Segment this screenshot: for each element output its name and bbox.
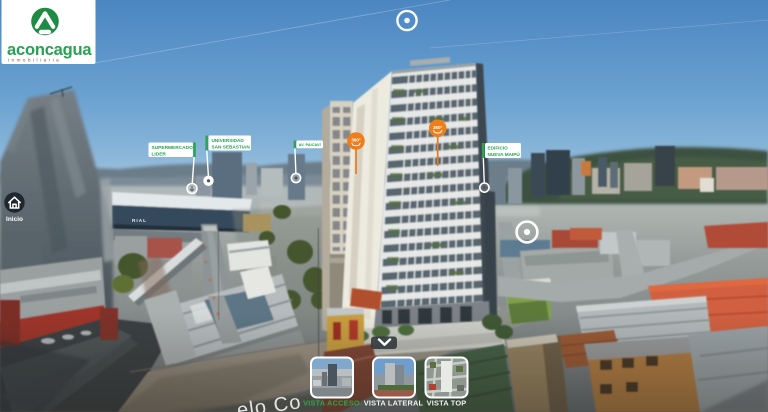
svg-text:360°: 360° [351,138,361,143]
svg-text:NUEVA MAIPÚ: NUEVA MAIPÚ [488,151,521,157]
svg-text:EDIFICIO: EDIFICIO [488,146,509,151]
svg-text:aconcagua: aconcagua [7,41,92,59]
svg-text:SAN SEBASTIAN: SAN SEBASTIAN [212,144,251,149]
svg-text:SUPERMERCADO: SUPERMERCADO [152,145,194,151]
svg-text:VISTA ACCESO: VISTA ACCESO [303,399,360,408]
svg-text:Inicio: Inicio [6,216,23,223]
svg-text:VISTA TOP: VISTA TOP [427,399,467,408]
svg-text:inmobiliaria: inmobiliaria [8,58,61,63]
svg-text:VISTA LATERAL: VISTA LATERAL [364,399,424,408]
svg-text:AV. PAICAVÍ: AV. PAICAVÍ [299,142,322,147]
svg-text:RIAL: RIAL [132,218,147,224]
svg-text:360°: 360° [433,125,443,130]
svg-text:LIDER: LIDER [152,151,167,157]
svg-text:UNIVERSIDAD: UNIVERSIDAD [212,138,245,143]
